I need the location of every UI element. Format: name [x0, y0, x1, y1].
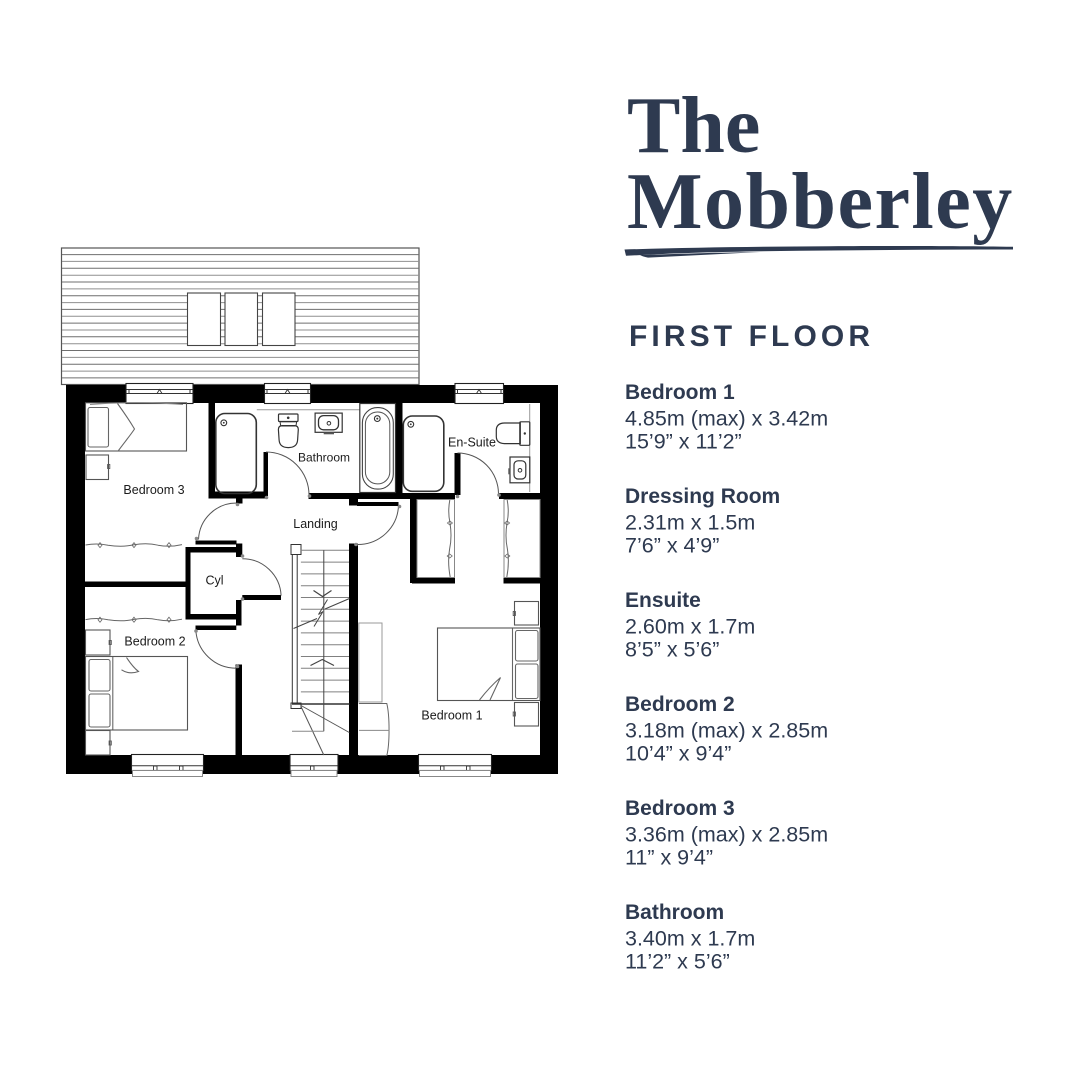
svg-text:Bedroom 2: Bedroom 2 — [625, 693, 735, 716]
svg-text:11’2” x 5’6”: 11’2” x 5’6” — [625, 950, 730, 974]
svg-text:3.18m (max) x 2.85m: 3.18m (max) x 2.85m — [625, 719, 828, 743]
svg-text:2.60m x 1.7m: 2.60m x 1.7m — [625, 615, 755, 639]
svg-text:7’6” x 4’9”: 7’6” x 4’9” — [625, 534, 719, 558]
svg-text:3.36m (max) x 2.85m: 3.36m (max) x 2.85m — [625, 823, 828, 847]
svg-text:11” x 9’4”: 11” x 9’4” — [625, 846, 713, 870]
svg-text:Bathroom: Bathroom — [298, 451, 350, 465]
svg-text:4.85m (max) x 3.42m: 4.85m (max) x 3.42m — [625, 407, 828, 431]
svg-text:Bedroom 3: Bedroom 3 — [625, 797, 735, 820]
svg-text:The: The — [627, 82, 760, 170]
svg-text:Bedroom 2: Bedroom 2 — [124, 635, 185, 649]
svg-text:3.40m x 1.7m: 3.40m x 1.7m — [625, 927, 755, 951]
svg-text:FIRST FLOOR: FIRST FLOOR — [629, 320, 874, 353]
svg-text:Landing: Landing — [293, 517, 338, 531]
svg-text:8’5” x 5’6”: 8’5” x 5’6” — [625, 638, 719, 662]
svg-text:Dressing Room: Dressing Room — [625, 485, 780, 508]
svg-text:10’4” x 9’4”: 10’4” x 9’4” — [625, 742, 731, 766]
svg-text:Bathroom: Bathroom — [625, 901, 724, 924]
svg-text:15’9” x 11’2”: 15’9” x 11’2” — [625, 430, 742, 454]
svg-text:Bedroom 1: Bedroom 1 — [421, 709, 482, 723]
svg-text:Cyl: Cyl — [205, 574, 223, 588]
svg-text:Mobberley: Mobberley — [627, 158, 1014, 246]
svg-text:En-Suite: En-Suite — [448, 436, 496, 450]
svg-text:Bedroom 3: Bedroom 3 — [123, 483, 184, 497]
svg-text:2.31m x 1.5m: 2.31m x 1.5m — [625, 511, 755, 535]
svg-text:Ensuite: Ensuite — [625, 589, 701, 612]
svg-text:Bedroom 1: Bedroom 1 — [625, 381, 735, 404]
